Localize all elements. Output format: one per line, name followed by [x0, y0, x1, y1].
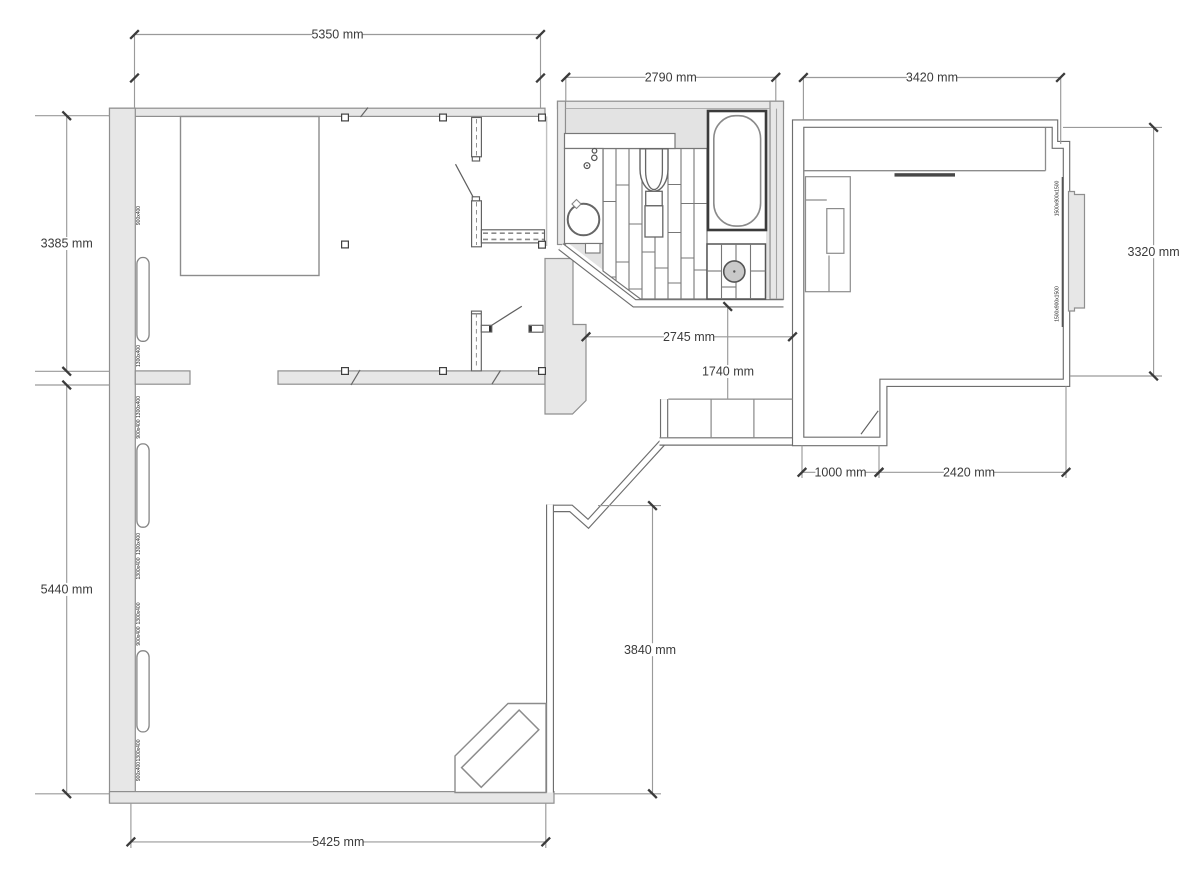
svg-text:1000 mm: 1000 mm: [814, 466, 866, 480]
svg-text:1300x400: 1300x400: [136, 739, 142, 761]
svg-text:5440 mm: 5440 mm: [41, 583, 93, 597]
svg-text:1300x400: 1300x400: [136, 557, 142, 579]
svg-text:5350 mm: 5350 mm: [311, 28, 363, 42]
svg-text:1300x400: 1300x400: [136, 533, 142, 555]
svg-text:3420 mm: 3420 mm: [906, 71, 958, 85]
svg-text:1500x900x1500: 1500x900x1500: [1055, 286, 1061, 322]
svg-text:2420 mm: 2420 mm: [943, 466, 995, 480]
svg-text:900x400: 900x400: [136, 626, 142, 645]
svg-text:1500x900x1500: 1500x900x1500: [1055, 180, 1061, 216]
svg-text:5425 mm: 5425 mm: [312, 835, 364, 849]
svg-text:900x400: 900x400: [136, 762, 142, 781]
svg-text:900x400: 900x400: [136, 206, 142, 225]
svg-text:3320 mm: 3320 mm: [1128, 245, 1180, 259]
svg-text:2790 mm: 2790 mm: [645, 71, 697, 85]
svg-text:1740 mm: 1740 mm: [702, 365, 754, 379]
svg-text:900x400: 900x400: [136, 419, 142, 438]
svg-text:2745 mm: 2745 mm: [663, 330, 715, 344]
svg-text:3840 mm: 3840 mm: [624, 643, 676, 657]
svg-text:3385 mm: 3385 mm: [41, 237, 93, 251]
svg-text:1300x400: 1300x400: [136, 345, 142, 367]
svg-text:1300x400: 1300x400: [136, 396, 142, 418]
svg-text:1300x400: 1300x400: [136, 602, 142, 624]
